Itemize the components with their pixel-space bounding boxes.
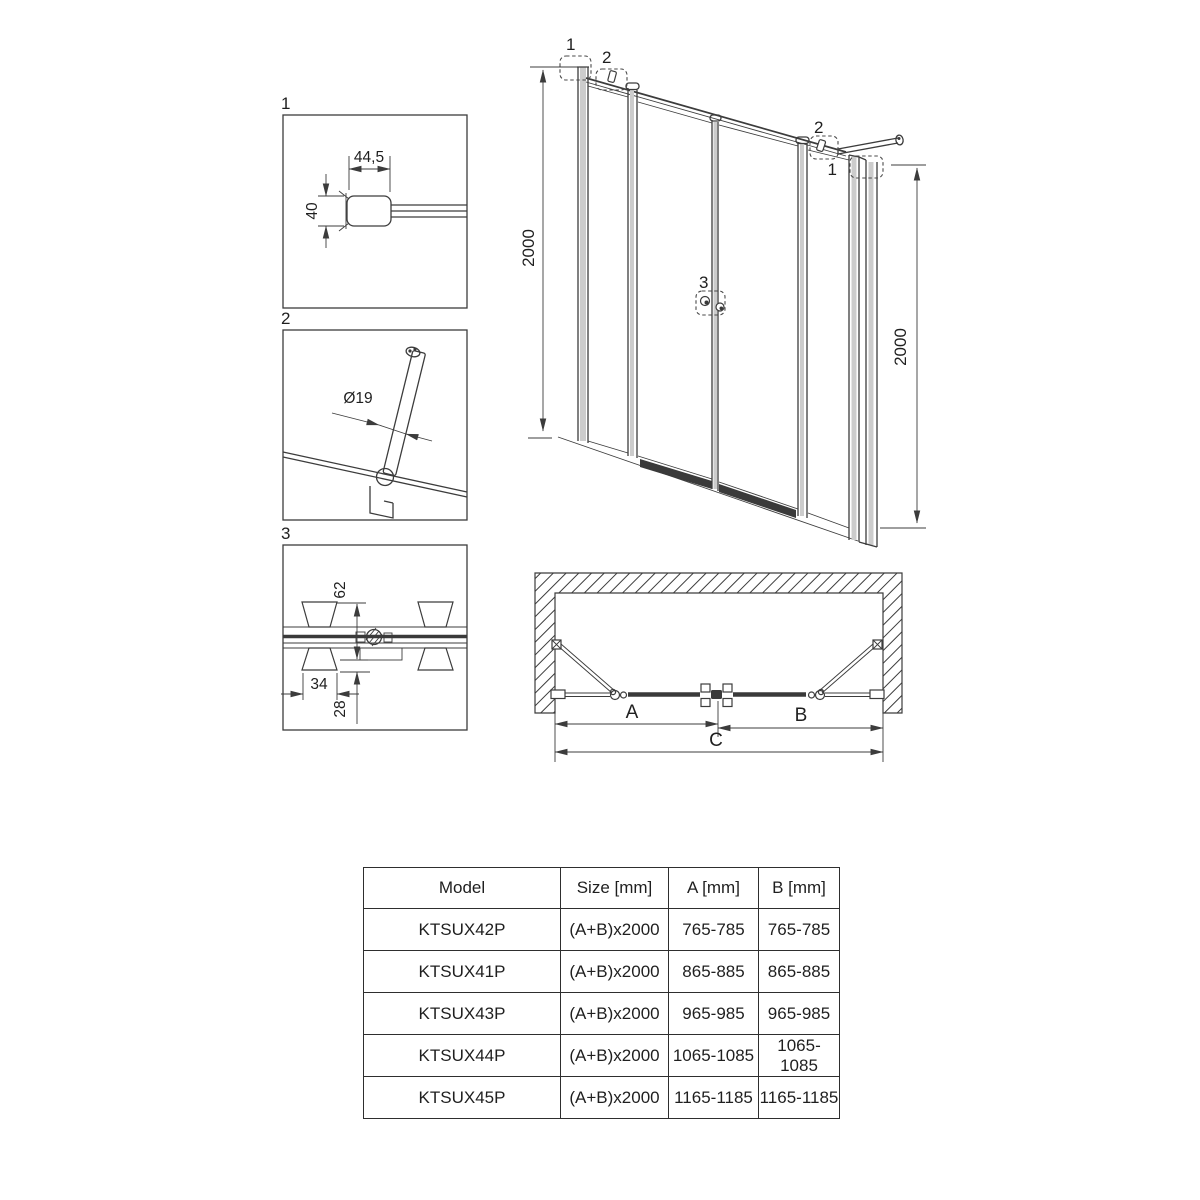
cell-a: 865-885 bbox=[669, 951, 759, 993]
table-header-row: Model Size [mm] A [mm] B [mm] bbox=[364, 868, 840, 909]
cell-b: 1165-1185 bbox=[759, 1077, 840, 1119]
col-header-a: A [mm] bbox=[669, 868, 759, 909]
elevation-dim-height-left: 2000 bbox=[519, 229, 538, 267]
detail-1-label: 1 bbox=[281, 94, 290, 113]
elevation-view: 1 2 2 1 3 2000 2000 bbox=[519, 35, 926, 547]
table-row: KTSUX43P (A+B)x2000 965-985 965-985 bbox=[364, 993, 840, 1035]
cell-model: KTSUX42P bbox=[364, 909, 561, 951]
spec-table: Model Size [mm] A [mm] B [mm] KTSUX42P (… bbox=[363, 867, 840, 1119]
detail-1-dim-height: 40 bbox=[304, 202, 321, 220]
cell-a: 1065-1085 bbox=[669, 1035, 759, 1077]
cell-b: 965-985 bbox=[759, 993, 840, 1035]
detail-3-handle-knobs: 3 62 34 28 bbox=[281, 524, 467, 730]
elevation-callout-2-left: 2 bbox=[602, 48, 611, 67]
cell-b: 865-885 bbox=[759, 951, 840, 993]
elevation-callout-1-left: 1 bbox=[566, 35, 575, 54]
cell-model: KTSUX45P bbox=[364, 1077, 561, 1119]
cell-model: KTSUX43P bbox=[364, 993, 561, 1035]
cell-b: 1065-1085 bbox=[759, 1035, 840, 1077]
plan-dim-c: C bbox=[709, 730, 723, 751]
cell-model: KTSUX44P bbox=[364, 1035, 561, 1077]
cell-model: KTSUX41P bbox=[364, 951, 561, 993]
cell-a: 965-985 bbox=[669, 993, 759, 1035]
detail-2-dim-diameter: Ø19 bbox=[343, 390, 372, 407]
table-row: KTSUX42P (A+B)x2000 765-785 765-785 bbox=[364, 909, 840, 951]
cell-size: (A+B)x2000 bbox=[561, 993, 669, 1035]
cell-a: 765-785 bbox=[669, 909, 759, 951]
shower-door-spec-sheet: 1 44,5 40 2 Ø19 bbox=[0, 0, 1200, 1200]
cell-size: (A+B)x2000 bbox=[561, 1035, 669, 1077]
cell-size: (A+B)x2000 bbox=[561, 951, 669, 993]
detail-1-dim-width: 44,5 bbox=[354, 149, 384, 166]
detail-2-stabilizer-bar: 2 Ø19 bbox=[281, 309, 467, 520]
plan-dim-a: A bbox=[626, 702, 639, 723]
elevation-callout-3-center: 3 bbox=[699, 273, 708, 292]
table-row: KTSUX44P (A+B)x2000 1065-1085 1065-1085 bbox=[364, 1035, 840, 1077]
table-row: KTSUX41P (A+B)x2000 865-885 865-885 bbox=[364, 951, 840, 993]
detail-3-label: 3 bbox=[281, 524, 290, 543]
detail-3-dim-offset: 28 bbox=[332, 700, 349, 717]
col-header-b: B [mm] bbox=[759, 868, 840, 909]
elevation-callout-1-right: 1 bbox=[828, 160, 837, 179]
cell-size: (A+B)x2000 bbox=[561, 909, 669, 951]
cell-b: 765-785 bbox=[759, 909, 840, 951]
detail-2-label: 2 bbox=[281, 309, 290, 328]
col-header-size: Size [mm] bbox=[561, 868, 669, 909]
cell-a: 1165-1185 bbox=[669, 1077, 759, 1119]
plan-view: A B C bbox=[535, 573, 902, 762]
cell-size: (A+B)x2000 bbox=[561, 1077, 669, 1119]
elevation-callout-2-right: 2 bbox=[814, 118, 823, 137]
col-header-model: Model bbox=[364, 868, 561, 909]
elevation-dim-height-right: 2000 bbox=[891, 328, 910, 366]
plan-dim-b: B bbox=[795, 705, 808, 726]
detail-1-wall-profile: 1 44,5 40 bbox=[281, 94, 467, 308]
detail-3-dim-depth: 62 bbox=[332, 581, 349, 598]
detail-3-dim-width: 34 bbox=[310, 676, 328, 693]
table-row: KTSUX45P (A+B)x2000 1165-1185 1165-1185 bbox=[364, 1077, 840, 1119]
technical-drawing: 1 44,5 40 2 Ø19 bbox=[0, 0, 1200, 860]
